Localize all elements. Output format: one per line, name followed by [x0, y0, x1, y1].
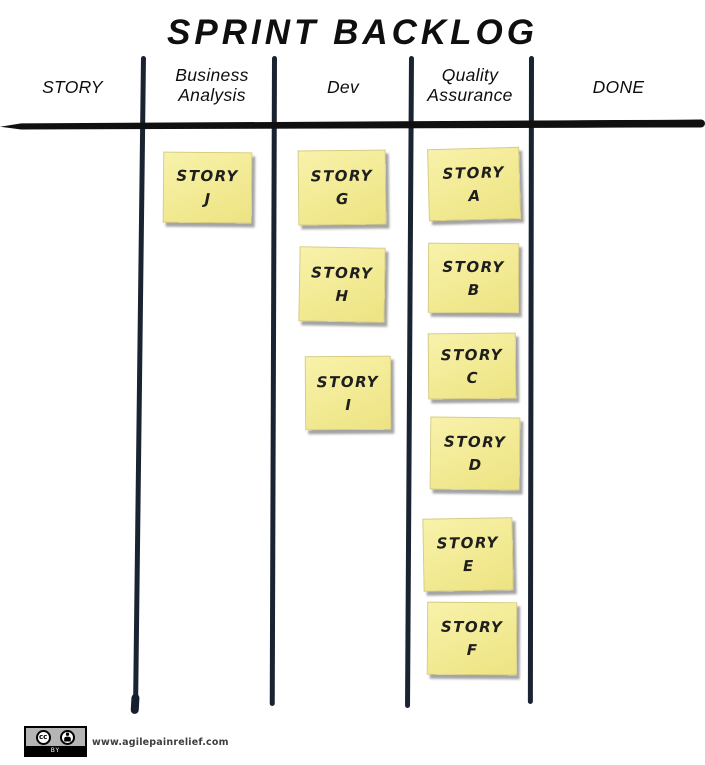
- cc-by-strip: BY: [26, 746, 85, 755]
- column-header-done: DONE: [532, 77, 705, 97]
- note-line1: STORY: [176, 167, 238, 186]
- by-person-icon: [60, 730, 75, 745]
- sticky-note-story-e[interactable]: STORY E: [422, 517, 513, 592]
- column-divider-line: [405, 56, 414, 708]
- sticky-note-story-a[interactable]: STORY A: [427, 147, 521, 221]
- cc-license-badge[interactable]: cc BY: [24, 726, 87, 757]
- note-line2: B: [468, 280, 480, 298]
- note-line2: C: [467, 368, 478, 386]
- note-line1: STORY: [311, 167, 374, 186]
- sticky-note-story-j[interactable]: STORY J: [163, 152, 253, 224]
- note-line2: E: [463, 557, 474, 575]
- note-line1: STORY: [317, 372, 379, 390]
- sticky-note-story-d[interactable]: STORY D: [430, 417, 521, 491]
- note-line1: STORY: [441, 618, 503, 636]
- sticky-note-story-h[interactable]: STORY H: [298, 246, 385, 322]
- column-header-dev: Dev: [279, 77, 407, 97]
- website-link[interactable]: www.agilepainrelief.com: [92, 737, 229, 748]
- cc-icon: cc: [36, 730, 51, 745]
- note-line1: STORY: [436, 533, 499, 552]
- note-line2: I: [345, 395, 351, 413]
- note-line2: A: [468, 186, 480, 204]
- sticky-note-story-g[interactable]: STORY G: [298, 150, 387, 226]
- note-line1: STORY: [442, 163, 505, 183]
- page-title: SPRINT BACKLOG: [0, 13, 705, 53]
- note-line1: STORY: [311, 263, 374, 282]
- sticky-note-story-i[interactable]: STORY I: [305, 356, 392, 431]
- cc-badge-icons: cc: [26, 728, 85, 746]
- column-header-business-analysis: Business Analysis: [150, 65, 274, 105]
- sticky-note-story-c[interactable]: STORY C: [428, 333, 517, 400]
- header-divider-line: [0, 119, 705, 130]
- column-header-story: STORY: [0, 77, 145, 97]
- note-line1: STORY: [444, 433, 507, 452]
- column-divider-line: [270, 56, 277, 706]
- sticky-note-story-b[interactable]: STORY B: [428, 243, 519, 313]
- column-divider-line: [133, 56, 146, 711]
- sticky-note-story-f[interactable]: STORY F: [427, 602, 518, 676]
- note-line1: STORY: [441, 345, 503, 364]
- column-divider-line: [528, 56, 534, 704]
- note-line1: STORY: [442, 257, 504, 275]
- note-line2: G: [336, 190, 349, 208]
- column-header-quality-assurance: Quality Assurance: [413, 65, 527, 105]
- note-line2: F: [467, 641, 477, 659]
- note-line2: D: [469, 456, 482, 474]
- sprint-backlog-board: SPRINT BACKLOG STORY Business Analysis D…: [0, 0, 705, 765]
- note-line2: J: [205, 190, 211, 208]
- note-line2: H: [335, 287, 348, 305]
